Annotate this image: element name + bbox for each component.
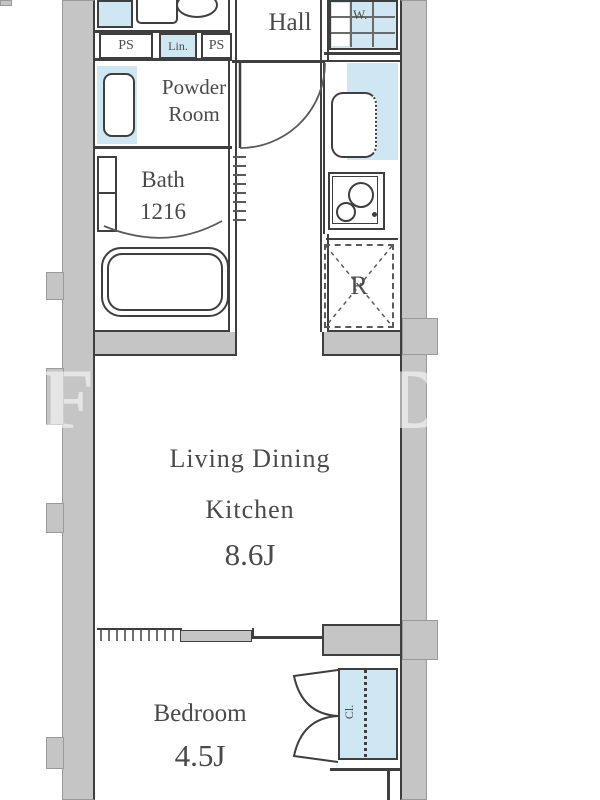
room-powder-line1: Powder	[140, 77, 248, 98]
line-hall-header	[232, 60, 327, 63]
stove-knob-icon	[372, 212, 377, 217]
line-powder-bath	[95, 146, 232, 149]
bath-door-rail-icon	[233, 156, 246, 226]
wall-right-step-bottom	[402, 620, 438, 660]
line-partition-step	[252, 628, 254, 639]
linen-box: Lin.	[159, 33, 197, 59]
washer-label: W.	[353, 8, 367, 21]
room-bedroom-size: 4.5J	[95, 740, 305, 771]
washer-area: W.	[329, 0, 398, 50]
watermark-left: F	[42, 356, 95, 442]
washer-grid-h2	[331, 32, 395, 34]
room-ldk-line2: Kitchen	[100, 497, 400, 523]
fridge-area: R	[324, 244, 394, 328]
washbasin-icon	[103, 73, 135, 137]
wall-left-notch-4	[46, 737, 64, 769]
line-washer-bottom	[324, 52, 400, 55]
linen-label: Lin.	[168, 40, 188, 52]
partition-ticks-icon	[101, 630, 173, 641]
partition-slider-panel	[180, 630, 252, 642]
sink-icon	[331, 92, 377, 158]
ps-left-box: PS	[99, 33, 153, 59]
room-ldk-line1: Living Dining	[100, 446, 400, 472]
ps-left-label: PS	[118, 39, 134, 53]
toilet-icon	[136, 0, 178, 24]
line-partition-track	[97, 628, 182, 630]
floor-plan: PS Lin. PS W. R Cl.	[0, 0, 600, 800]
closet-pole-line	[364, 670, 367, 757]
closet-area: Cl.	[338, 668, 398, 760]
toilet-cabinet	[97, 0, 133, 28]
room-bedroom-name: Bedroom	[95, 701, 305, 726]
line-counter-end-2	[326, 238, 398, 240]
stove-icon	[328, 172, 385, 230]
washer-grid-v2	[372, 2, 374, 47]
ps-right-box: PS	[201, 33, 232, 59]
room-ldk-size: 8.6J	[100, 539, 400, 570]
line-partition-right	[252, 636, 324, 639]
bathtub-inner-icon	[107, 253, 223, 311]
corner-mark	[0, 0, 12, 6]
wall-right-step-top	[402, 318, 438, 355]
room-bath-name: Bath	[118, 168, 208, 191]
wall-left-notch-1	[46, 272, 64, 300]
bath-shelf-icon	[97, 156, 117, 232]
hall-door-arc-icon	[240, 63, 325, 148]
washer-grid-v1	[350, 2, 352, 47]
fridge-label: R	[350, 273, 367, 299]
burner-small-icon	[336, 202, 356, 222]
ps-right-label: PS	[209, 39, 225, 53]
room-bath-size: 1216	[118, 200, 208, 223]
wall-closet-top	[322, 624, 402, 656]
washer-grid-cell	[332, 3, 349, 46]
room-hall-label: Hall	[250, 10, 330, 35]
wall-mid-left	[93, 330, 237, 356]
toilet-bowl-icon	[176, 0, 218, 18]
bath-shelf-divider	[99, 192, 115, 194]
line-bedroom-right	[387, 768, 390, 800]
wall-left-notch-3	[46, 503, 64, 533]
room-powder-line2: Room	[140, 104, 248, 125]
closet-label: Cl.	[343, 697, 355, 727]
watermark-right: D	[386, 356, 448, 442]
